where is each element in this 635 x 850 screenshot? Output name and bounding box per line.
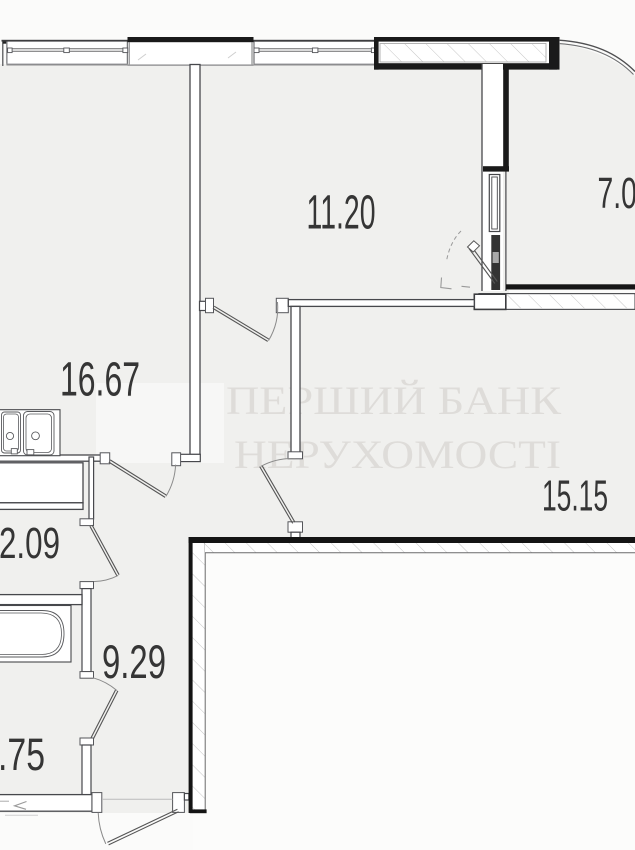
svg-text:2.09: 2.09	[0, 520, 60, 568]
svg-text:15.15: 15.15	[542, 471, 608, 520]
svg-text:16.67: 16.67	[60, 354, 140, 407]
svg-text:11.20: 11.20	[307, 186, 376, 239]
svg-text:НЕРУХОМОСТІ: НЕРУХОМОСТІ	[234, 432, 561, 477]
svg-text:7.05: 7.05	[598, 170, 635, 218]
svg-text:ПЕРШИЙ БАНК: ПЕРШИЙ БАНК	[226, 378, 561, 423]
svg-text:9.29: 9.29	[102, 635, 166, 688]
svg-text:.75: .75	[0, 729, 45, 780]
